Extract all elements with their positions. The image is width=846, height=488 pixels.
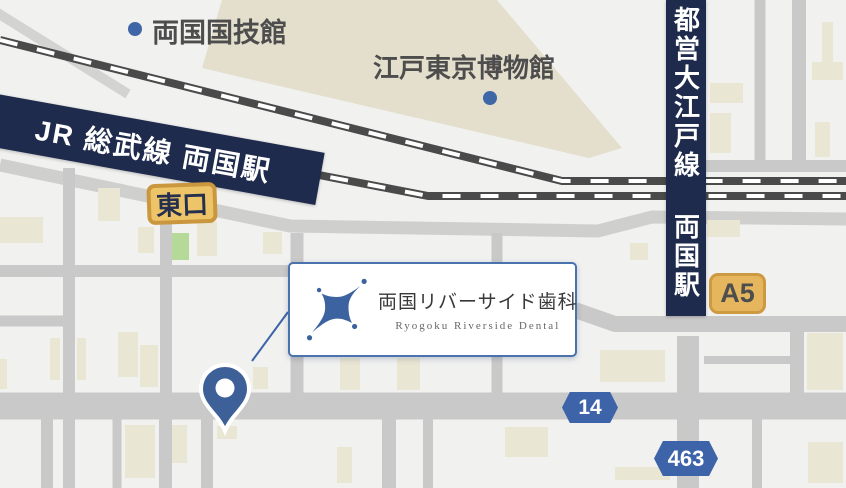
kokugikan-marker-dot bbox=[128, 22, 142, 36]
museum-marker-dot bbox=[483, 91, 497, 105]
a5-exit-sign: A5 bbox=[709, 273, 766, 314]
clinic-card-text: 両国リバーサイド歯科 Ryogoku Riverside Dental bbox=[378, 287, 578, 332]
kokugikan-label: 両国国技館 bbox=[152, 11, 287, 50]
pin-hole bbox=[216, 379, 235, 398]
clinic-logo-star-icon bbox=[300, 271, 378, 349]
clinic-card: 両国リバーサイド歯科 Ryogoku Riverside Dental bbox=[288, 262, 577, 357]
clinic-name-en: Ryogoku Riverside Dental bbox=[395, 320, 560, 332]
green-building bbox=[172, 233, 189, 260]
east-exit-sign: 東口 bbox=[146, 182, 217, 225]
toei-oedo-line-banner: 都営大江戸線 両国駅 bbox=[666, 0, 706, 316]
clinic-leader-line bbox=[252, 312, 288, 361]
route-14-shield: 14 bbox=[562, 392, 618, 423]
museum-label: 江戸東京博物館 bbox=[373, 48, 555, 85]
access-map: 両国国技館 江戸東京博物館 JR 総武線 両国駅 都営大江戸線 両国駅 東口 A… bbox=[0, 0, 846, 488]
route-463-shield: 463 bbox=[654, 441, 718, 476]
clinic-name: 両国リバーサイド歯科 bbox=[378, 287, 578, 314]
